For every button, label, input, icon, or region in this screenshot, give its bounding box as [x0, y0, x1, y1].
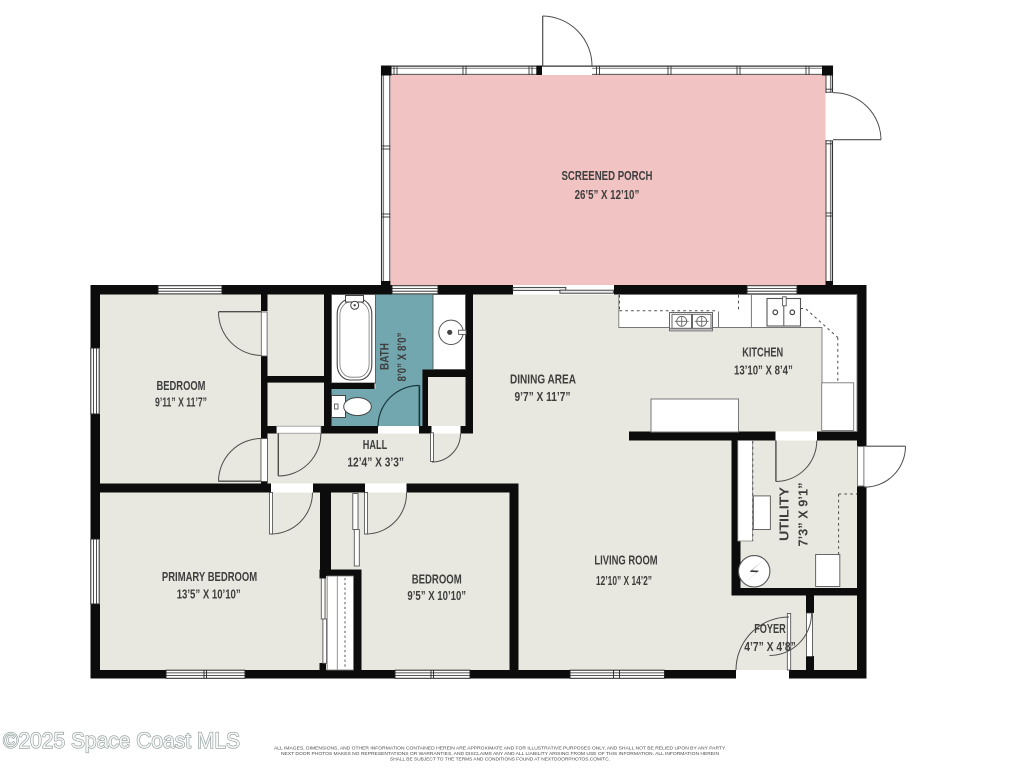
svg-text:9’11” X 11’7”: 9’11” X 11’7” — [155, 395, 207, 410]
svg-text:SCREENED PORCH: SCREENED PORCH — [562, 168, 653, 183]
svg-text:DINING AREA: DINING AREA — [510, 372, 576, 387]
svg-text:12’4” X 3’3”: 12’4” X 3’3” — [347, 454, 404, 469]
svg-text:26’5” X 12’10”: 26’5” X 12’10” — [575, 187, 640, 202]
svg-text:PRIMARY BEDROOM: PRIMARY BEDROOM — [162, 569, 257, 584]
svg-text:FOYER: FOYER — [754, 621, 786, 636]
svg-text:9’5” X 10’10”: 9’5” X 10’10” — [407, 588, 466, 603]
svg-text:BEDROOM: BEDROOM — [412, 572, 462, 587]
svg-text:NEXT DOOR PHOTOS MAKES NO REPR: NEXT DOOR PHOTOS MAKES NO REPRESENTATION… — [281, 751, 719, 756]
svg-text:4’7” X 4’8”: 4’7” X 4’8” — [744, 639, 796, 654]
svg-text:9’7” X 11’7”: 9’7” X 11’7” — [515, 389, 571, 404]
svg-text:BATH: BATH — [380, 343, 392, 370]
svg-text:SHALL BE SUBJECT TO THE TERMS: SHALL BE SUBJECT TO THE TERMS AND CONDIT… — [390, 757, 610, 762]
svg-text:LIVING ROOM: LIVING ROOM — [594, 553, 657, 568]
svg-text:HALL: HALL — [363, 437, 387, 452]
svg-text:7’3” X 9’1”: 7’3” X 9’1” — [795, 483, 810, 547]
svg-text:8’0” X 8’0”: 8’0” X 8’0” — [397, 333, 409, 382]
svg-text:BEDROOM: BEDROOM — [157, 378, 206, 393]
svg-text:UTILITY: UTILITY — [777, 487, 792, 541]
svg-text:13’5” X 10’10”: 13’5” X 10’10” — [177, 587, 241, 602]
svg-text:©2025 Space Coast MLS: ©2025 Space Coast MLS — [3, 728, 240, 753]
svg-text:KITCHEN: KITCHEN — [742, 345, 783, 360]
svg-text:13’10” X 8’4”: 13’10” X 8’4” — [734, 362, 793, 377]
svg-text:12’10” X 14’2”: 12’10” X 14’2” — [596, 573, 652, 588]
svg-text:ALL IMAGES, DIMENSIONS, AND OT: ALL IMAGES, DIMENSIONS, AND OTHER INFORM… — [274, 745, 726, 750]
